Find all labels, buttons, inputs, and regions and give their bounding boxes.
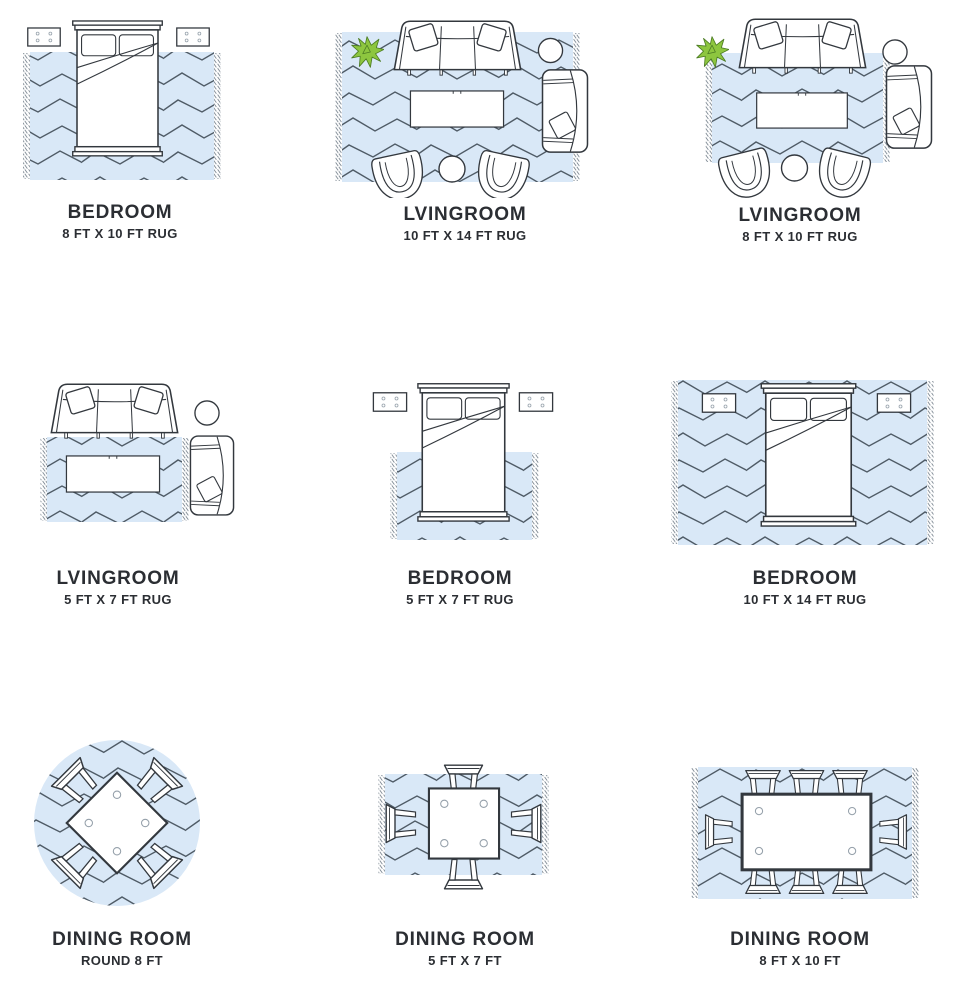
rug-fringe-left — [379, 775, 386, 874]
room-label: DINING ROOM — [52, 929, 192, 951]
coffee-table — [66, 456, 159, 492]
rug-fringe-right — [182, 438, 189, 521]
rug-fringe-left — [41, 438, 48, 521]
diningroom-5x7-diagram — [355, 737, 575, 920]
bed — [761, 384, 855, 526]
layout-card-bedroom-10x14: BEDROOM 10 FT X 14 FT RUG — [665, 375, 945, 607]
rug-size-label: ROUND 8 FT — [52, 953, 192, 969]
rug-fringe-right — [912, 768, 919, 898]
layout-card-livingroom-10x14: LVINGROOM 10 FT X 14 FT RUG — [335, 8, 595, 243]
armchair — [887, 66, 932, 148]
room-label: LVINGROOM — [57, 568, 180, 590]
rug-fringe-right — [532, 453, 539, 539]
rug-size-label: 8 FT X 10 FT — [730, 953, 870, 969]
rug-size-guide: BEDROOM 8 FT X 10 FT RUG — [0, 0, 958, 990]
rug-size-label: 5 FT X 7 FT RUG — [57, 592, 180, 608]
nightstand-left — [28, 28, 60, 46]
livingroom-10x14-diagram — [335, 8, 595, 198]
sofa — [394, 21, 520, 75]
rug-size-label: 8 FT X 10 FT RUG — [739, 229, 862, 245]
layout-card-livingroom-5x7: LVINGROOM 5 FT X 7 FT RUG — [0, 375, 236, 607]
round-ottoman — [782, 155, 808, 181]
layout-card-diningroom-5x7: DINING ROOM 5 FT X 7 FT — [355, 737, 575, 968]
rug-fringe-left — [671, 381, 678, 544]
rug-size-label: 8 FT X 10 FT RUG — [62, 226, 177, 242]
room-label: LVINGROOM — [403, 204, 526, 226]
bedroom-8x10-diagram — [0, 15, 240, 195]
rug-size-label: 10 FT X 14 FT RUG — [403, 228, 526, 244]
nightstand-right — [519, 393, 552, 411]
round-ottoman — [439, 156, 465, 182]
armchair — [190, 436, 233, 515]
sofa — [51, 384, 177, 438]
bedroom-10x14-diagram — [665, 375, 945, 555]
livingroom-5x7-diagram — [0, 375, 236, 555]
side-table — [195, 401, 219, 425]
rug-fringe-right — [927, 381, 934, 544]
rug-size-label: 10 FT X 14 FT RUG — [743, 592, 866, 608]
rug-size-label: 5 FT X 7 FT RUG — [406, 592, 514, 608]
room-label: DINING ROOM — [730, 929, 870, 951]
rug-fringe-left — [706, 54, 713, 162]
livingroom-8x10-diagram — [660, 5, 940, 200]
bedroom-5x7-diagram — [360, 375, 560, 555]
rug-fringe-left — [391, 453, 398, 539]
room-label: DINING ROOM — [395, 929, 535, 951]
dining-table — [742, 794, 871, 870]
nightstand-left — [702, 394, 735, 412]
rug-fringe-right — [214, 53, 221, 179]
coffee-table — [757, 93, 848, 128]
side-table — [883, 40, 907, 64]
rug-fringe-left — [23, 53, 30, 179]
nightstand-right — [877, 394, 910, 412]
room-label: BEDROOM — [743, 568, 866, 590]
layout-card-bedroom-8x10: BEDROOM 8 FT X 10 FT RUG — [0, 15, 240, 241]
layout-card-diningroom-round8: DINING ROOM ROUND 8 FT — [22, 735, 222, 968]
rug-fringe-left — [336, 33, 343, 181]
coffee-table — [410, 91, 503, 127]
layout-card-livingroom-8x10: LVINGROOM 8 FT X 10 FT RUG — [660, 5, 940, 244]
sofa — [739, 19, 865, 73]
rug-fringe-left — [692, 768, 699, 898]
layout-card-diningroom-8x10: DINING ROOM 8 FT X 10 FT — [660, 737, 940, 968]
room-label: LVINGROOM — [739, 205, 862, 227]
bed — [418, 384, 509, 521]
rug-size-label: 5 FT X 7 FT — [395, 953, 535, 969]
side-table — [538, 38, 562, 62]
dining-table — [429, 788, 499, 858]
armchair — [543, 70, 588, 152]
diningroom-round8-diagram — [22, 735, 222, 920]
nightstand-right — [177, 28, 209, 46]
diningroom-8x10-diagram — [660, 737, 940, 920]
rug-fringe-right — [542, 775, 549, 874]
room-label: BEDROOM — [62, 202, 177, 224]
room-label: BEDROOM — [406, 568, 514, 590]
layout-card-bedroom-5x7: BEDROOM 5 FT X 7 FT RUG — [360, 375, 560, 607]
bed — [73, 21, 163, 156]
nightstand-left — [373, 393, 406, 411]
